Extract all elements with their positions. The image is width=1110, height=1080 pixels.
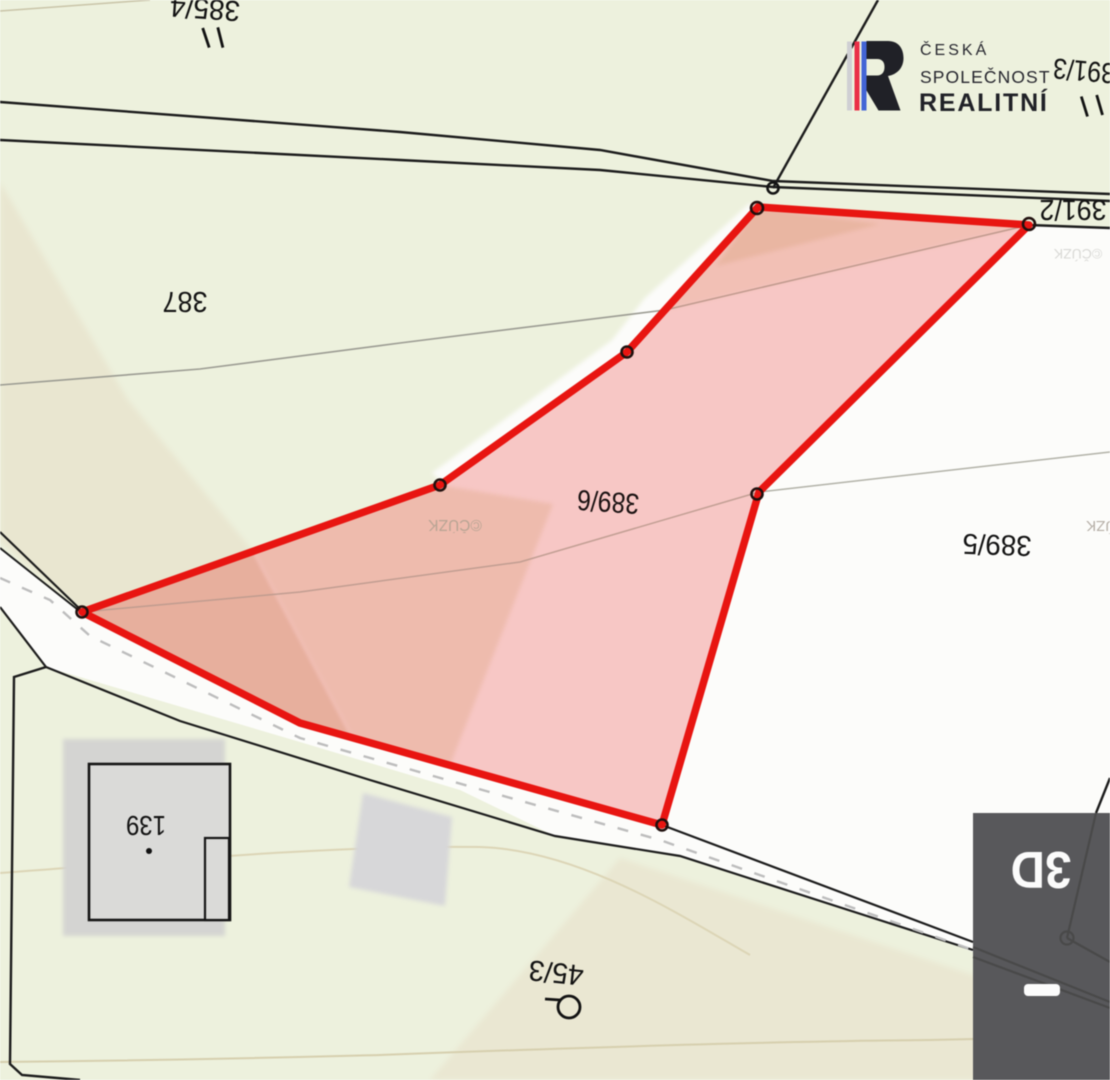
svg-text:391/3: 391/3 <box>1052 51 1110 88</box>
svg-text:389/5: 389/5 <box>962 527 1032 561</box>
svg-text:45/3: 45/3 <box>527 953 585 991</box>
svg-text:ČESKÁ: ČESKÁ <box>920 40 989 59</box>
svg-text:©ČÚZK: ©ČÚZK <box>428 516 482 533</box>
svg-text:REALITNÍ: REALITNÍ <box>919 88 1049 117</box>
svg-text:©ČÚZK: ©ČÚZK <box>1086 517 1110 534</box>
svg-text:3D: 3D <box>1011 840 1072 898</box>
svg-text:389/6: 389/6 <box>576 483 640 519</box>
svg-text:385/4: 385/4 <box>169 0 241 26</box>
svg-text:391/2: 391/2 <box>1040 193 1107 225</box>
svg-text:139: 139 <box>126 810 166 841</box>
svg-text:SPOLEČNOST: SPOLEČNOST <box>920 66 1051 87</box>
svg-text:©ČÚZK: ©ČÚZK <box>1053 246 1102 262</box>
svg-text:387: 387 <box>163 285 208 317</box>
